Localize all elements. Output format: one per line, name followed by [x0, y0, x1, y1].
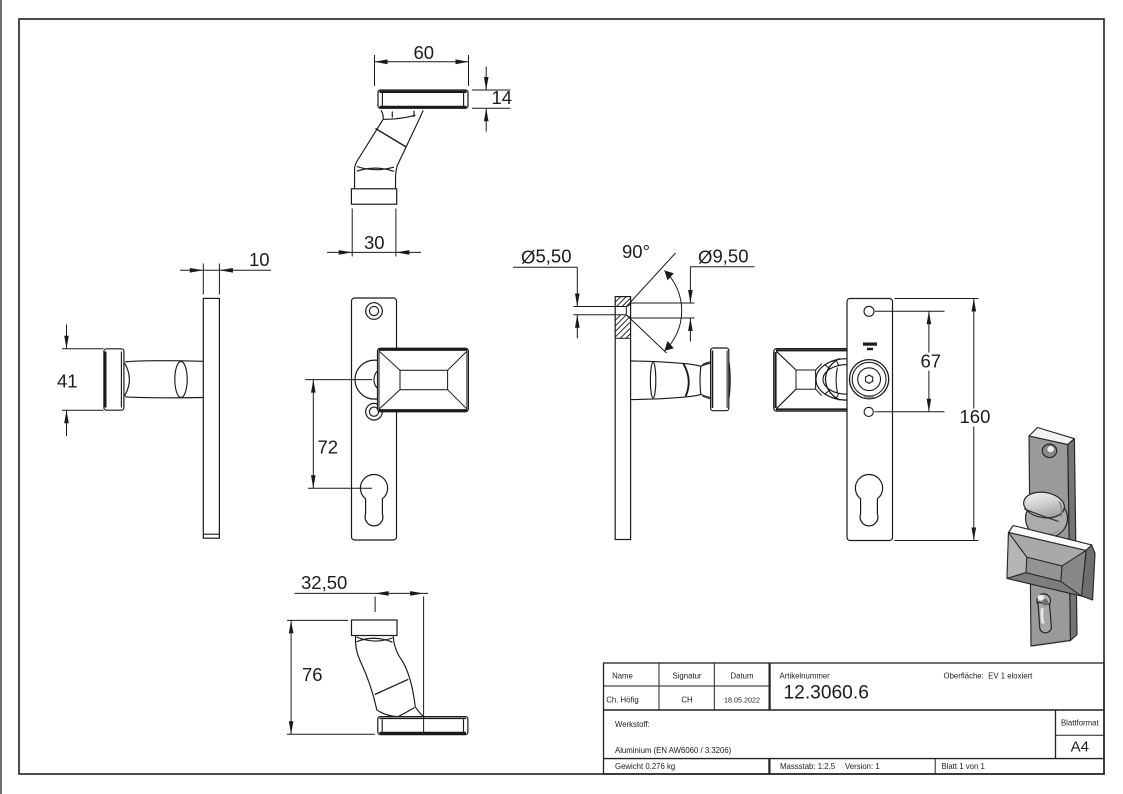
- svg-text:90°: 90°: [622, 241, 650, 262]
- svg-text:30: 30: [364, 232, 385, 253]
- svg-text:Ø: Ø: [521, 247, 535, 268]
- svg-text:18.05.2022: 18.05.2022: [724, 696, 760, 705]
- svg-text:CH: CH: [681, 696, 692, 705]
- svg-text:160: 160: [960, 406, 991, 427]
- svg-text:9,50: 9,50: [713, 246, 749, 267]
- svg-text:Blatt 1 von 1: Blatt 1 von 1: [942, 762, 985, 771]
- svg-text:Signatur: Signatur: [672, 672, 701, 681]
- svg-text:41: 41: [57, 371, 78, 392]
- svg-text:Massstab: 1:2.5: Massstab: 1:2.5: [780, 762, 836, 771]
- svg-text:Gewicht 0.276 kg: Gewicht 0.276 kg: [615, 762, 675, 771]
- svg-text:60: 60: [414, 42, 435, 63]
- svg-text:Artikelnummer: Artikelnummer: [780, 672, 831, 681]
- svg-text:32,50: 32,50: [301, 572, 347, 593]
- svg-text:72: 72: [318, 437, 339, 458]
- svg-text:Werkstoff:: Werkstoff:: [615, 720, 650, 729]
- svg-text:12.3060.6: 12.3060.6: [784, 683, 869, 704]
- svg-text:76: 76: [302, 664, 323, 685]
- svg-text:Datum: Datum: [731, 672, 754, 681]
- svg-text:10: 10: [249, 249, 270, 270]
- svg-text:Ch. Höfig: Ch. Höfig: [606, 696, 639, 705]
- svg-text:Blattformat: Blattformat: [1061, 719, 1100, 728]
- svg-text:5,50: 5,50: [536, 246, 572, 267]
- svg-text:67: 67: [921, 351, 942, 372]
- svg-text:Version: 1: Version: 1: [845, 762, 880, 771]
- svg-text:Aluminium (EN AW6060 / 3.3206): Aluminium (EN AW6060 / 3.3206): [615, 746, 732, 755]
- svg-text:A4: A4: [1071, 739, 1089, 756]
- svg-text:Name: Name: [612, 672, 633, 681]
- svg-text:Ø: Ø: [698, 247, 712, 268]
- svg-text:Oberfläche: EV 1 eloxiert: Oberfläche: EV 1 eloxiert: [944, 672, 1034, 681]
